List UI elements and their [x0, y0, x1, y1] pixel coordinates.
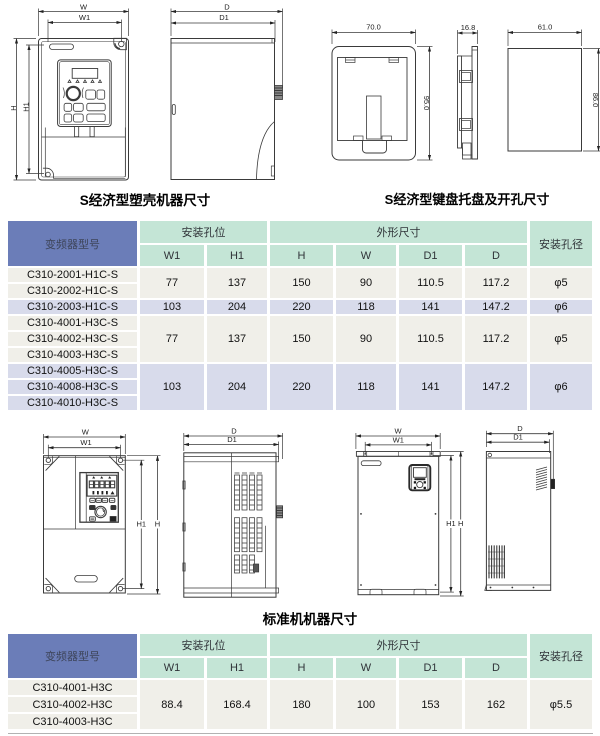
- svg-text:H: H: [9, 105, 18, 110]
- svg-text:D1: D1: [227, 435, 237, 444]
- svg-text:H: H: [155, 520, 160, 529]
- svg-text:95.0: 95.0: [422, 96, 431, 111]
- svg-text:H1: H1: [137, 520, 147, 529]
- svg-text:70.0: 70.0: [366, 23, 381, 32]
- svg-text:D1: D1: [219, 13, 229, 22]
- svg-text:W: W: [82, 428, 90, 437]
- svg-text:W1: W1: [80, 438, 91, 447]
- svg-text:H1: H1: [446, 519, 456, 528]
- svg-text:H1: H1: [22, 102, 31, 112]
- svg-text:H: H: [458, 519, 463, 528]
- svg-text:W1: W1: [79, 13, 90, 22]
- svg-text:D: D: [224, 3, 230, 12]
- svg-text:86.0: 86.0: [591, 93, 600, 108]
- svg-text:D1: D1: [513, 433, 523, 442]
- svg-text:W1: W1: [393, 435, 404, 444]
- svg-text:W: W: [80, 3, 88, 12]
- svg-text:16.8: 16.8: [461, 23, 476, 32]
- svg-text:W: W: [394, 427, 402, 436]
- svg-text:61.0: 61.0: [538, 23, 553, 32]
